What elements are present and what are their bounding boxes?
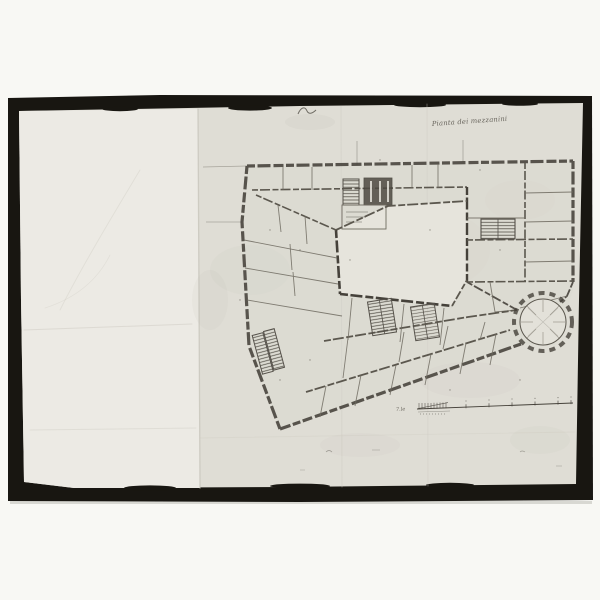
photograph-of-floor-plan: Pianta dei mezzanini 7.le [0, 0, 600, 600]
oval-hall [514, 293, 572, 351]
top-staircase [343, 179, 359, 205]
dark-stair-block [364, 178, 392, 205]
grand-staircase [481, 219, 515, 239]
service-staircase-mid-b [410, 303, 439, 340]
photo-canvas: Pianta dei mezzanini 7.le [0, 0, 600, 600]
service-staircase-mid-a [367, 298, 396, 335]
scale-label: 7.le [396, 407, 406, 413]
blank-left-sheet [19, 109, 200, 488]
